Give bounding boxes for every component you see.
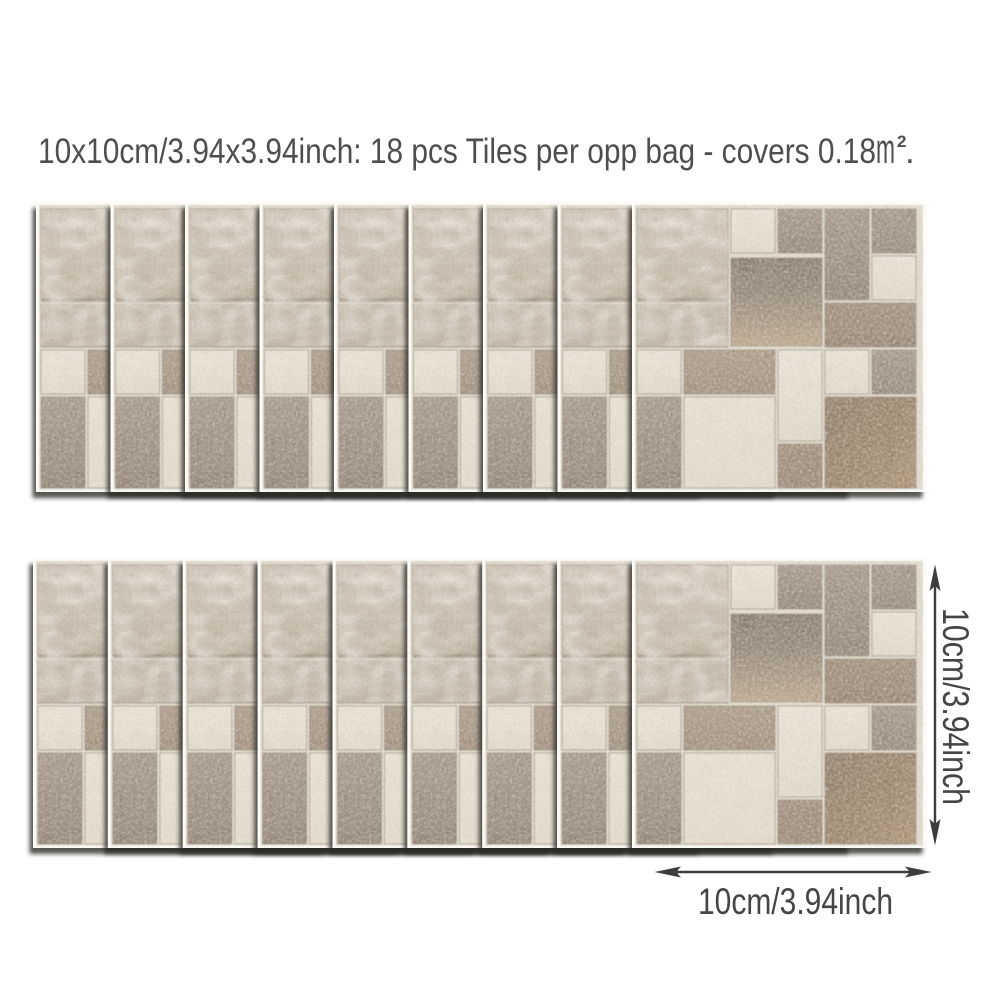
svg-text:.: . [905, 132, 915, 171]
svg-text:10cm/3.94inch: 10cm/3.94inch [698, 881, 893, 922]
svg-text:m: m [876, 125, 895, 172]
svg-text:10x10cm/3.94x3.94inch: 18 pcs: 10x10cm/3.94x3.94inch: 18 pcs Tiles per … [38, 132, 876, 171]
svg-text:10cm/3.94inch: 10cm/3.94inch [935, 608, 976, 805]
